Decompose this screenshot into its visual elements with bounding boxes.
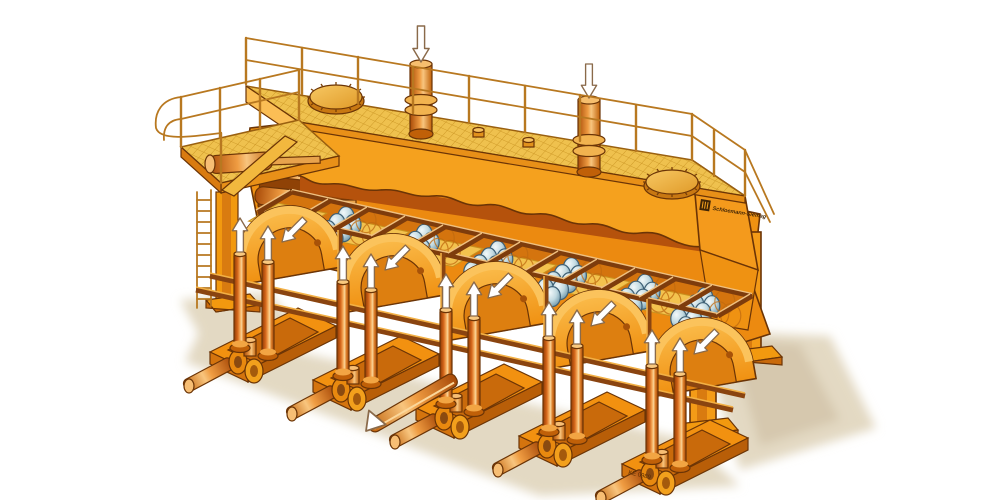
standpipe-right (573, 96, 605, 177)
down-arrow-icon (581, 64, 596, 98)
machine-illustration: Schloemann-Siemag (0, 0, 1000, 500)
down-arrow-icon (413, 26, 429, 62)
manhole-hatch-left (307, 82, 365, 114)
isometric-machine-drawing: Schloemann-Siemag (0, 0, 1000, 500)
standpipe-left (405, 60, 437, 139)
